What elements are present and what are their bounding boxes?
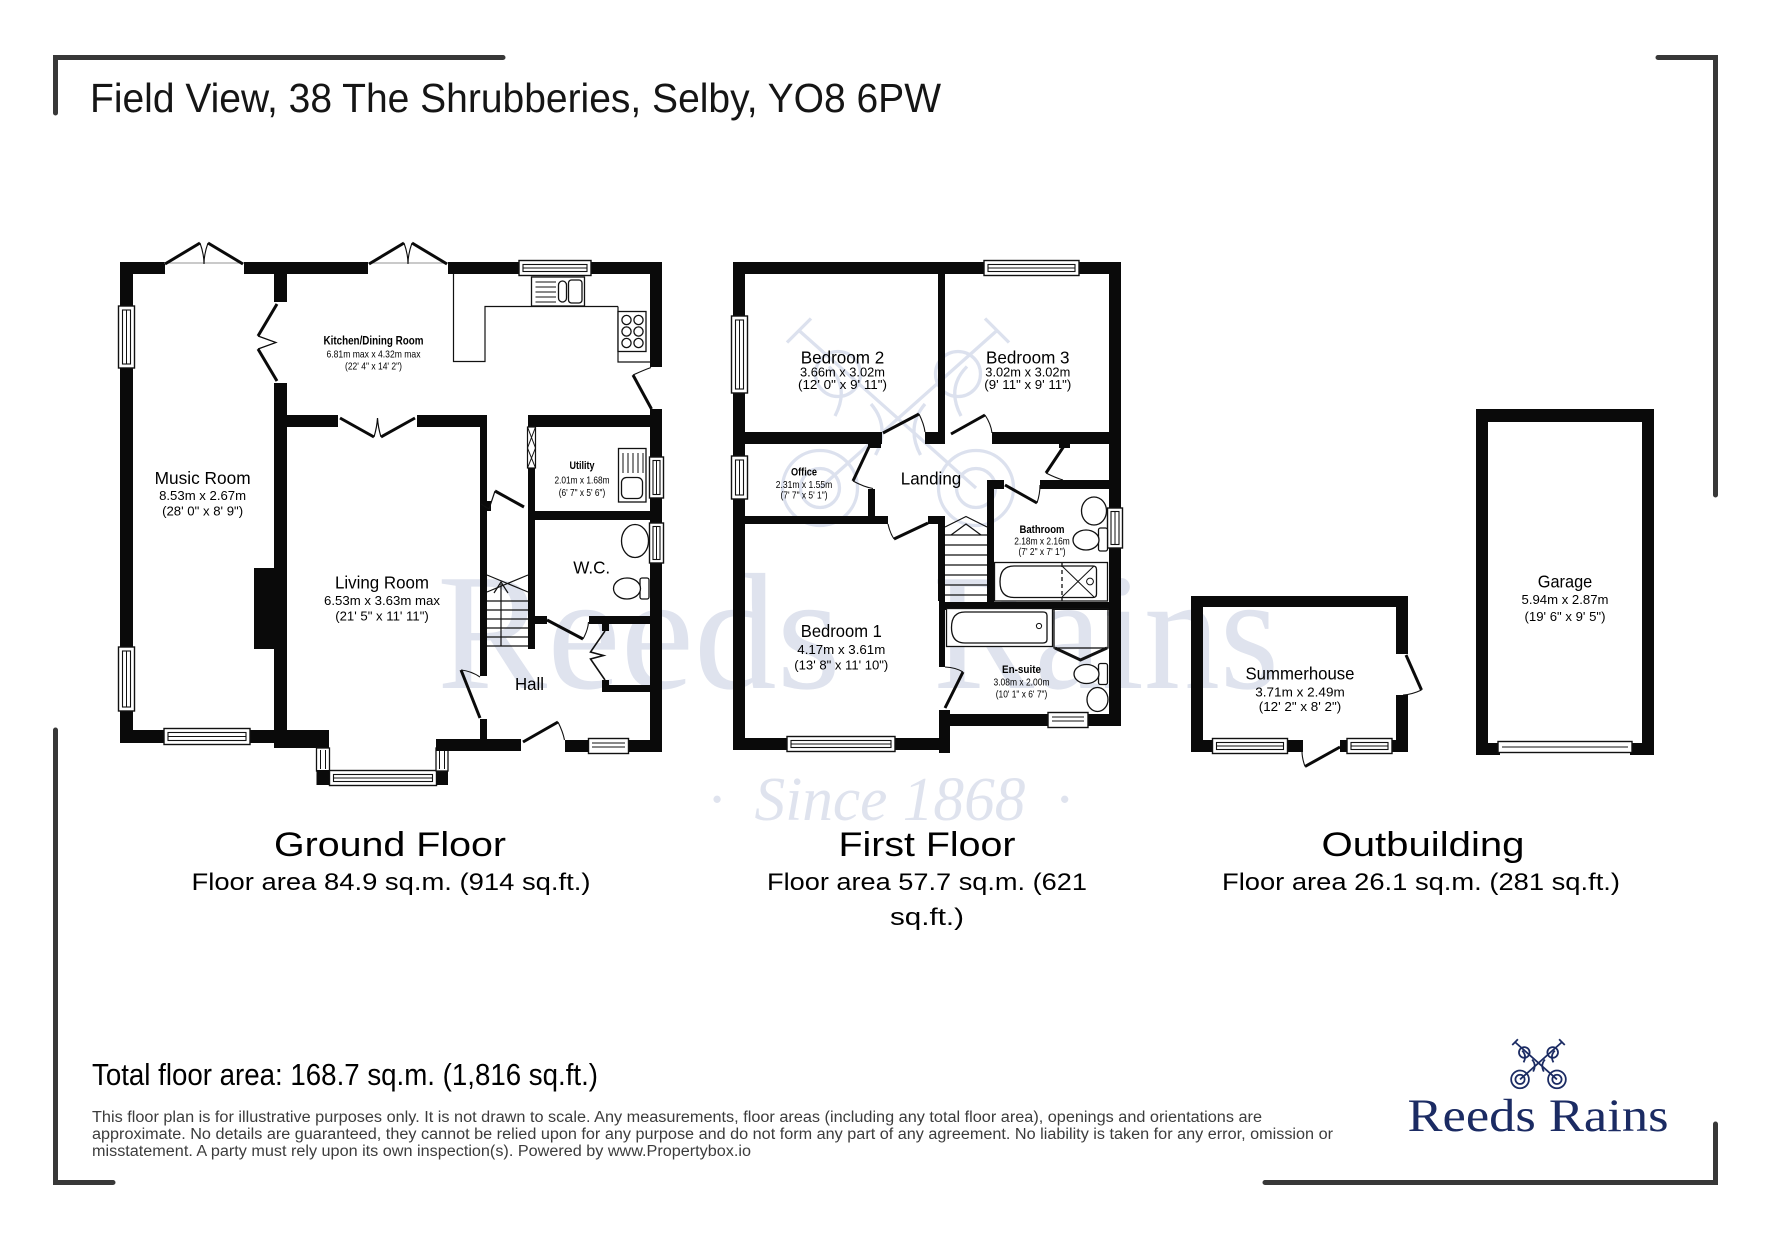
svg-text:(12' 0" x 9' 11"): (12' 0" x 9' 11"): [798, 378, 887, 392]
svg-text:Music Room: Music Room: [155, 468, 251, 488]
svg-text:Reeds: Reeds: [437, 540, 841, 724]
svg-text:3.71m x 2.49m: 3.71m x 2.49m: [1255, 685, 1345, 700]
svg-text:Total floor area: 168.7 sq.m.: Total floor area: 168.7 sq.m. (1,816 sq.…: [92, 1057, 598, 1092]
svg-text:(12' 2" x 8' 2"): (12' 2" x 8' 2"): [1259, 699, 1342, 714]
svg-text:W.C.: W.C.: [573, 558, 610, 578]
svg-text:Field View, 38 The Shrubberies: Field View, 38 The Shrubberies, Selby, Y…: [90, 75, 941, 121]
svg-text:Living Room: Living Room: [335, 573, 429, 593]
svg-text:2.01m x 1.68m: 2.01m x 1.68m: [555, 475, 610, 487]
svg-text:Floor area 26.1 sq.m. (281 sq.: Floor area 26.1 sq.m. (281 sq.ft.): [1222, 869, 1620, 896]
svg-text:(6' 7" x 5' 6"): (6' 7" x 5' 6"): [559, 487, 606, 499]
svg-text:(9' 11" x 9' 11"): (9' 11" x 9' 11"): [984, 378, 1071, 392]
svg-text:This floor plan is for illustr: This floor plan is for illustrative purp…: [92, 1109, 1262, 1126]
svg-text:(19' 6" x 9' 5"): (19' 6" x 9' 5"): [1525, 609, 1606, 624]
svg-text:Kitchen/Dining Room: Kitchen/Dining Room: [324, 336, 424, 348]
svg-text:En-suite: En-suite: [1002, 664, 1041, 676]
svg-text:Office: Office: [791, 467, 817, 479]
svg-text:(28' 0" x 8' 9"): (28' 0" x 8' 9"): [162, 504, 243, 519]
svg-text:(21' 5" x 11' 11"): (21' 5" x 11' 11"): [335, 609, 429, 624]
svg-text:· Since 1868 ·: · Since 1868 ·: [709, 766, 1072, 834]
svg-text:(13' 8" x 11' 10"): (13' 8" x 11' 10"): [794, 658, 888, 673]
svg-text:Outbuilding: Outbuilding: [1322, 826, 1525, 864]
svg-text:Bedroom 2: Bedroom 2: [801, 348, 885, 368]
svg-text:Bedroom 3: Bedroom 3: [986, 348, 1070, 368]
svg-text:4.17m x 3.61m: 4.17m x 3.61m: [797, 642, 885, 657]
svg-text:5.94m x 2.87m: 5.94m x 2.87m: [1522, 592, 1609, 607]
svg-text:Bedroom 1: Bedroom 1: [801, 621, 882, 641]
svg-text:6.53m x 3.63m max: 6.53m x 3.63m max: [324, 593, 441, 608]
svg-text:sq.ft.): sq.ft.): [890, 904, 964, 931]
svg-text:Reeds Rains: Reeds Rains: [1408, 1090, 1669, 1142]
svg-text:Bathroom: Bathroom: [1020, 524, 1065, 536]
svg-text:Utility: Utility: [570, 460, 596, 472]
svg-text:Hall: Hall: [515, 674, 544, 694]
svg-text:(7' 2" x 7' 1"): (7' 2" x 7' 1"): [1019, 546, 1066, 558]
svg-text:(22' 4" x 14' 2"): (22' 4" x 14' 2"): [345, 361, 402, 373]
svg-text:misstatement. A party must rel: misstatement. A party must rely upon its…: [92, 1143, 751, 1160]
svg-text:8.53m x 2.67m: 8.53m x 2.67m: [159, 488, 246, 503]
svg-text:3.08m x 2.00m: 3.08m x 2.00m: [994, 677, 1050, 689]
svg-text:6.81m max x 4.32m max: 6.81m max x 4.32m max: [327, 349, 422, 361]
svg-text:(7' 7" x 5' 1"): (7' 7" x 5' 1"): [781, 490, 828, 502]
svg-text:First Floor: First Floor: [839, 826, 1016, 864]
svg-text:Floor area 57.7 sq.m. (621: Floor area 57.7 sq.m. (621: [767, 869, 1087, 896]
svg-text:Garage: Garage: [1538, 572, 1593, 592]
svg-text:Ground Floor: Ground Floor: [274, 826, 506, 864]
svg-text:(10' 1" x 6' 7"): (10' 1" x 6' 7"): [996, 689, 1048, 701]
svg-text:Floor area 84.9 sq.m. (914 sq.: Floor area 84.9 sq.m. (914 sq.ft.): [192, 869, 591, 896]
svg-text:Landing: Landing: [901, 469, 962, 489]
svg-text:Summerhouse: Summerhouse: [1246, 664, 1355, 684]
svg-text:approximate. No details are gu: approximate. No details are guaranteed, …: [92, 1126, 1333, 1143]
